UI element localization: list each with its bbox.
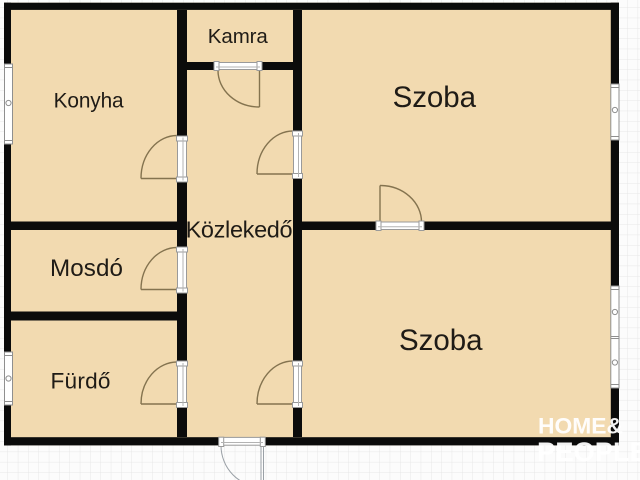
svg-text:Közlekedő: Közlekedő [186,216,293,242]
svg-text:Szoba: Szoba [399,324,483,357]
svg-text:HOME&: HOME& [538,414,623,439]
svg-text:Konyha: Konyha [54,90,124,113]
svg-text:Kamra: Kamra [208,25,269,48]
svg-text:Szoba: Szoba [393,81,477,114]
svg-text:Fürdő: Fürdő [51,369,111,394]
svg-text:Mosdó: Mosdó [50,255,123,282]
svg-text:PEOPLE: PEOPLE [537,437,640,467]
